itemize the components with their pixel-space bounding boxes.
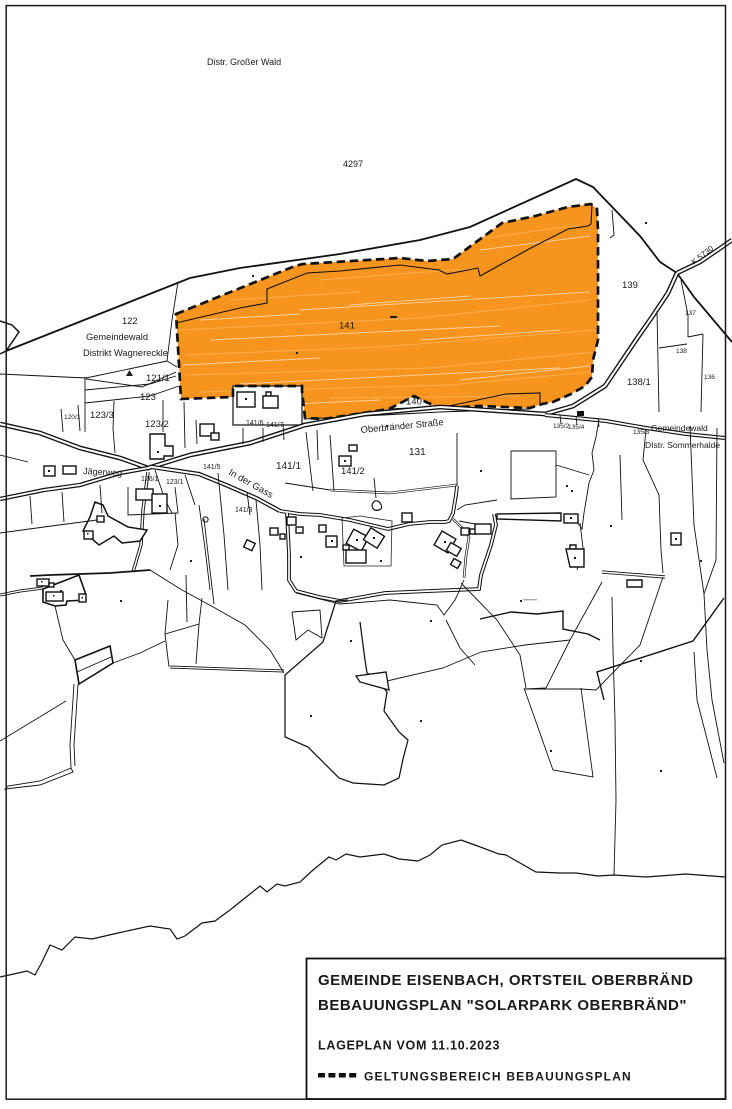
svg-text:137: 137 <box>685 310 696 317</box>
svg-text:141/1: 141/1 <box>276 461 301 472</box>
svg-text:Distr. Großer Wald: Distr. Großer Wald <box>207 57 281 67</box>
svg-text:123/1: 123/1 <box>166 479 184 486</box>
svg-text:123: 123 <box>140 392 156 403</box>
svg-text:141/5: 141/5 <box>203 464 221 471</box>
svg-text:135/4: 135/4 <box>568 424 585 431</box>
svg-text:123/2: 123/2 <box>145 419 169 430</box>
svg-text:136: 136 <box>704 374 715 381</box>
svg-text:BEBAUUNGSPLAN "SOLARPARK OBER: BEBAUUNGSPLAN "SOLARPARK OBERBRÄND" <box>318 997 687 1014</box>
svg-text:123/3: 123/3 <box>90 410 114 421</box>
svg-text:GEMEINDE EISENBACH, ORTSTEIL O: GEMEINDE EISENBACH, ORTSTEIL OBERBRÄND <box>318 972 693 989</box>
svg-text:138/1: 138/1 <box>627 377 651 388</box>
svg-text:DIstr. Sommerhalde: DIstr. Sommerhalde <box>645 440 720 450</box>
svg-text:120/1: 120/1 <box>64 414 81 421</box>
svg-text:LAGEPLAN VOM 11.10.2023: LAGEPLAN VOM 11.10.2023 <box>318 1039 500 1053</box>
svg-text:4297: 4297 <box>343 159 363 169</box>
svg-text:139: 139 <box>622 280 638 291</box>
svg-text:141: 141 <box>339 321 355 332</box>
svg-text:Distrikt Wagnereckle: Distrikt Wagnereckle <box>83 348 168 358</box>
svg-text:141/7: 141/7 <box>266 422 284 429</box>
svg-text:126/1: 126/1 <box>141 476 159 483</box>
svg-text:131: 131 <box>409 447 426 458</box>
svg-text:GELTUNGSBEREICH BEBAUUNGSPLAN: GELTUNGSBEREICH BEBAUUNGSPLAN <box>364 1070 632 1084</box>
svg-text:140: 140 <box>406 397 422 408</box>
svg-text:Jägerweg: Jägerweg <box>83 466 123 478</box>
svg-text:141/2: 141/2 <box>341 466 365 477</box>
svg-text:135/3: 135/3 <box>633 429 650 436</box>
svg-text:141/3: 141/3 <box>235 507 253 514</box>
svg-text:121/1: 121/1 <box>146 373 170 384</box>
svg-text:Gemeindewald: Gemeindewald <box>651 423 708 433</box>
svg-text:122: 122 <box>122 316 138 326</box>
svg-text:138: 138 <box>676 348 687 355</box>
svg-text:Gemeindewald: Gemeindewald <box>86 332 148 342</box>
svg-text:141/6: 141/6 <box>246 420 264 427</box>
